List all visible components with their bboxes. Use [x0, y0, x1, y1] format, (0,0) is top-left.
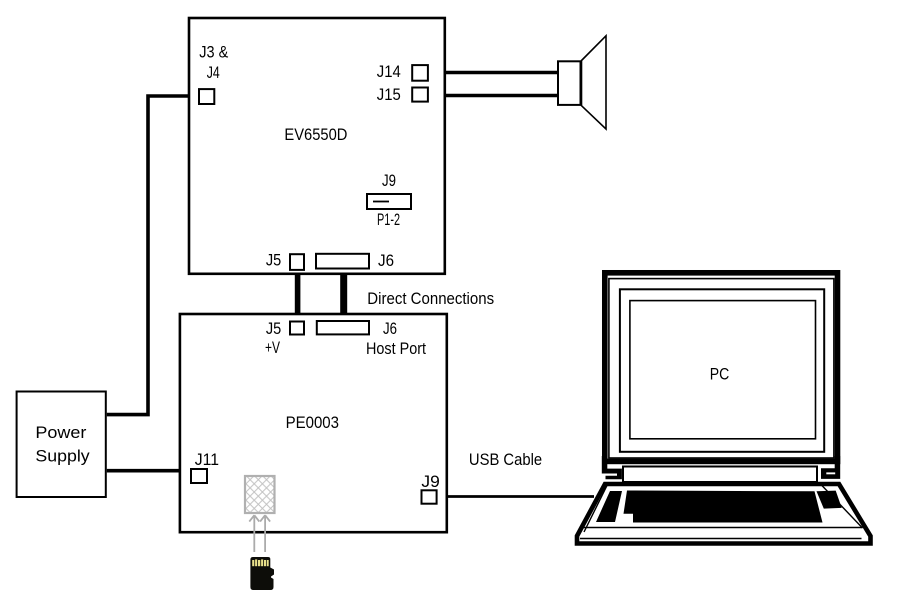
- svg-text:Power: Power: [35, 423, 86, 442]
- svg-text:Host Port: Host Port: [366, 339, 426, 358]
- svg-text:EV6550D: EV6550D: [284, 125, 347, 144]
- svg-text:J6: J6: [383, 319, 397, 338]
- svg-text:J5: J5: [266, 319, 281, 338]
- svg-text:PC: PC: [710, 365, 730, 384]
- svg-text:J4: J4: [207, 63, 220, 82]
- svg-text:J6: J6: [378, 251, 394, 270]
- svg-text:USB Cable: USB Cable: [469, 450, 542, 469]
- svg-text:Supply: Supply: [35, 447, 90, 466]
- svg-text:J3 &: J3 &: [199, 43, 229, 62]
- svg-text:J5: J5: [266, 251, 281, 270]
- svg-text:P1-2: P1-2: [377, 210, 400, 229]
- svg-text:J15: J15: [377, 85, 401, 104]
- svg-text:J14: J14: [377, 62, 401, 81]
- svg-text:Direct Connections: Direct Connections: [367, 289, 494, 308]
- svg-text:PE0003: PE0003: [286, 413, 339, 432]
- svg-text:J9: J9: [382, 171, 396, 190]
- svg-text:J11: J11: [195, 450, 219, 469]
- svg-text:+V: +V: [265, 338, 280, 357]
- svg-text:J9: J9: [421, 472, 439, 491]
